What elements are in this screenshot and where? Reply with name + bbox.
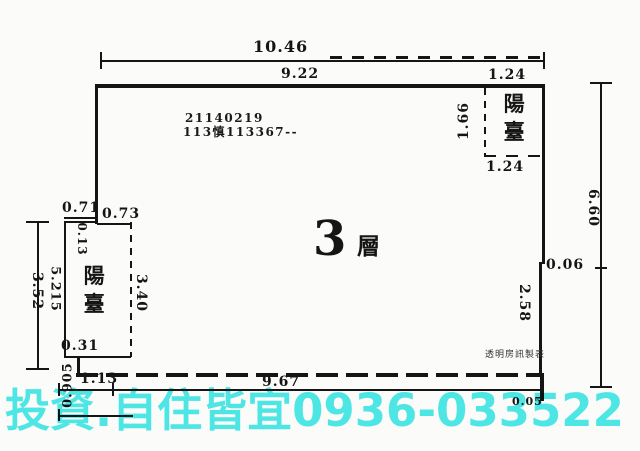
left-balcony-dashed-right	[130, 222, 132, 357]
dim-right-lower: 2.58	[517, 284, 531, 322]
dim-left-wall-thickness: 0.13	[76, 222, 88, 255]
tr-balcony-label: 陽臺	[502, 90, 526, 147]
floor-number: 3	[313, 215, 346, 263]
dim-right-height: 6.60	[586, 189, 600, 227]
dim-left-height-inner: 5.215	[49, 266, 62, 312]
wall-bottom	[76, 373, 542, 377]
watermark-text: 投資.自住皆宜0936-033522	[5, 386, 624, 436]
dim-tr-balcony-width: 1.24	[486, 160, 524, 174]
top-dim-tick-right	[543, 52, 545, 69]
wall-right-upper	[542, 84, 545, 264]
dim-top-right-width: 1.24	[488, 68, 526, 82]
floor-suffix: 層	[357, 236, 380, 259]
tr-balcony-dashed-bottom	[484, 155, 544, 157]
left-balcony-label: 陽臺	[82, 262, 106, 319]
dim-left-height-outer: 3.52	[30, 272, 44, 310]
floor-plan-canvas: 10.46 9.22 1.24 1.66 陽臺 1.24 21140219 11…	[0, 0, 640, 451]
top-dim-dash-artifact	[330, 56, 544, 59]
left-balcony-top-inner-edge	[97, 223, 131, 225]
dim-left-step: 0.31	[61, 339, 99, 353]
top-dim-line	[100, 60, 545, 62]
left-jog-dim-line	[64, 217, 97, 219]
right-dim-line	[600, 82, 602, 388]
registry-case-number: 113慎113367--	[183, 126, 298, 138]
wall-right-notch	[539, 262, 545, 264]
dim-tr-balcony-depth: 1.66	[457, 102, 471, 140]
left-balcony-bottom-edge	[64, 356, 131, 358]
dim-left-jog-inner: 0.73	[102, 207, 140, 221]
registry-number: 21140219	[185, 112, 264, 124]
dim-left-jog-outer: 0.71	[62, 201, 100, 215]
top-dim-tick-left	[100, 52, 102, 69]
dim-left-balcony-height: 3.40	[134, 274, 148, 312]
wall-top	[95, 84, 545, 88]
right-dim-tick-top	[590, 82, 612, 84]
left-dim-tick-bottom	[26, 368, 49, 370]
right-dim-tick-mid	[595, 267, 607, 269]
tr-balcony-dashed-left	[484, 88, 486, 157]
dim-top-main: 9.22	[281, 67, 319, 81]
maker-credit: 透明房訊製表	[485, 347, 545, 360]
dim-right-notch: 0.06	[546, 258, 584, 272]
dim-top-total: 10.46	[253, 39, 308, 55]
left-dim-tick-top	[26, 221, 49, 223]
